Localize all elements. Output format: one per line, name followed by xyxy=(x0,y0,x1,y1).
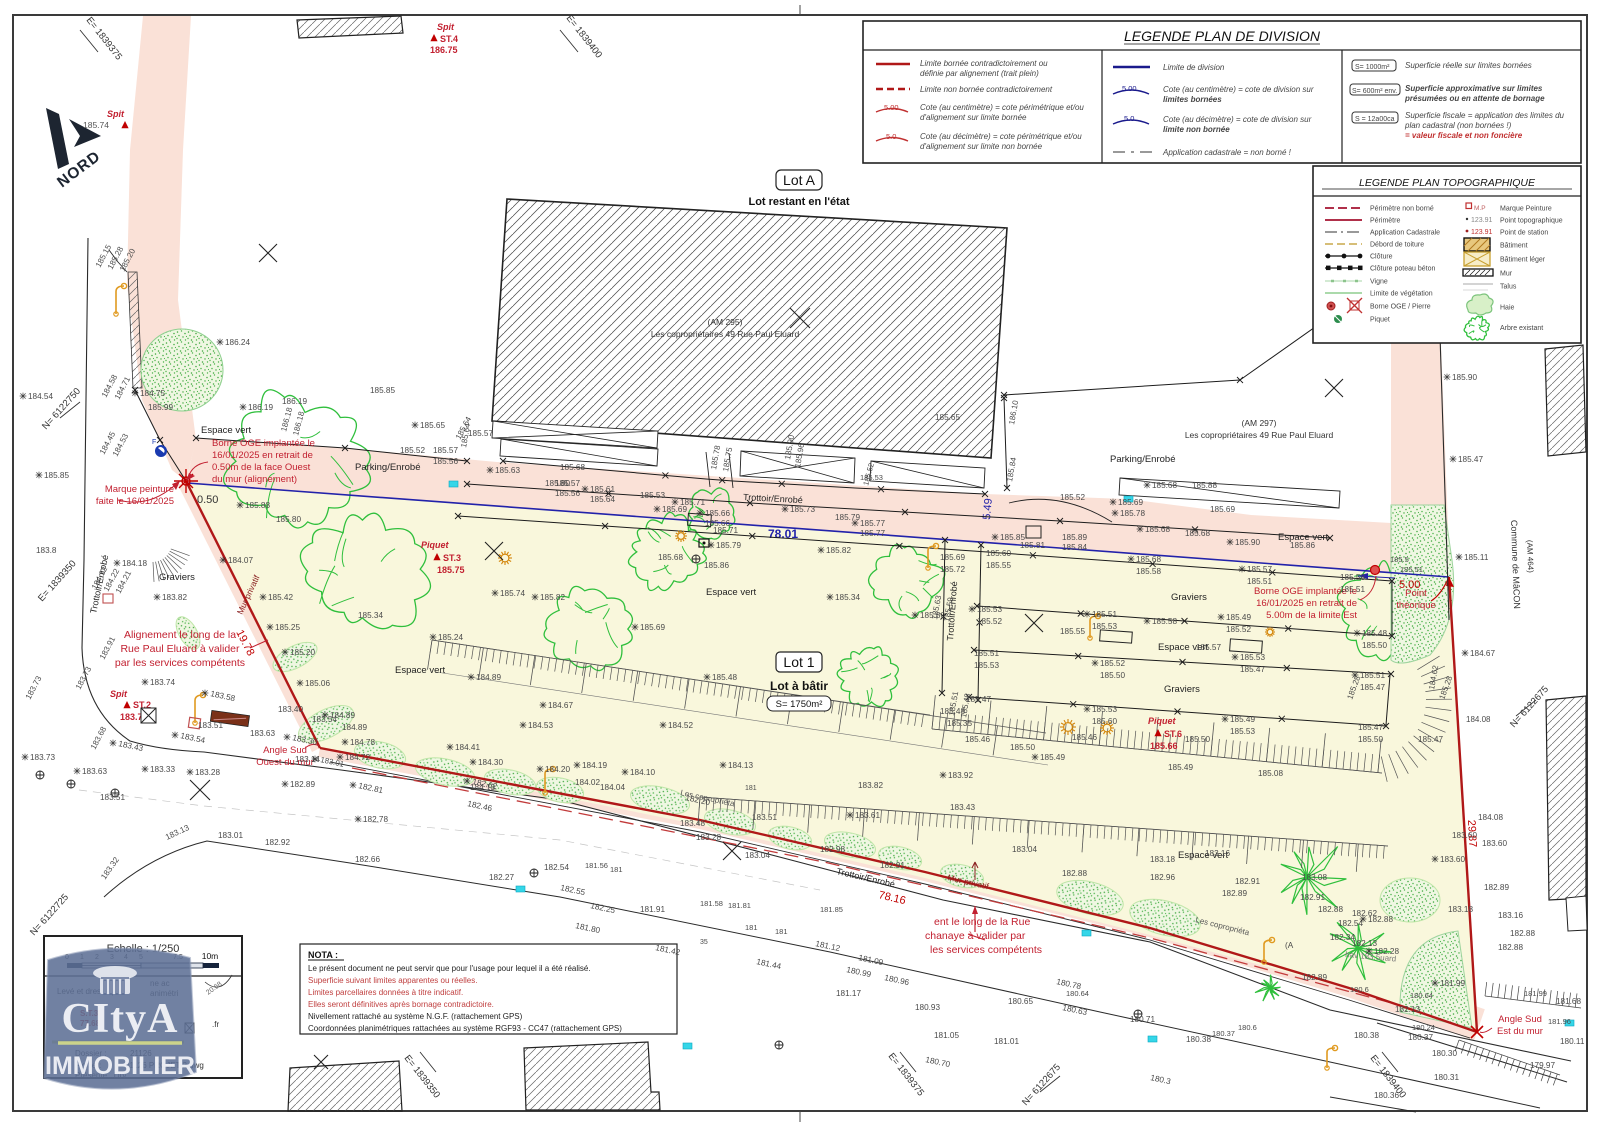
svg-text:185.50: 185.50 xyxy=(1358,735,1383,744)
svg-text:185.11: 185.11 xyxy=(1464,553,1489,562)
svg-text:Rue Paul Eluard à valider: Rue Paul Eluard à valider xyxy=(120,643,240,655)
svg-text:185.46: 185.46 xyxy=(1072,733,1097,742)
svg-text:185.47: 185.47 xyxy=(1360,683,1385,692)
svg-text:185.53: 185.53 xyxy=(977,605,1002,614)
svg-text:5.0: 5.0 xyxy=(886,132,896,141)
svg-text:183.61: 183.61 xyxy=(855,811,880,820)
svg-text:Cote (au centimètre) = cote de: Cote (au centimètre) = cote de division … xyxy=(1163,85,1314,94)
svg-text:184.20: 184.20 xyxy=(545,765,570,774)
svg-text:185.49: 185.49 xyxy=(1040,753,1065,762)
svg-text:185.56: 185.56 xyxy=(433,457,458,466)
svg-text:LEGENDE PLAN TOPOGRAPHIQUE: LEGENDE PLAN TOPOGRAPHIQUE xyxy=(1359,177,1536,189)
svg-text:183.28: 183.28 xyxy=(696,833,721,842)
svg-text:181.96: 181.96 xyxy=(1548,1017,1571,1026)
svg-text:CItyA: CItyA xyxy=(62,996,179,1042)
svg-text:185.52: 185.52 xyxy=(977,617,1002,626)
svg-text:180.6: 180.6 xyxy=(1238,1023,1257,1032)
svg-text:16/01/2025 en retrait de: 16/01/2025 en retrait de xyxy=(212,450,313,461)
svg-text:123.91: 123.91 xyxy=(1471,229,1493,236)
svg-text:185.69: 185.69 xyxy=(1118,498,1143,507)
svg-text:185.90: 185.90 xyxy=(1235,538,1260,547)
svg-text:Haie: Haie xyxy=(1500,305,1515,312)
svg-text:ST.3: ST.3 xyxy=(443,553,461,563)
svg-text:185.73: 185.73 xyxy=(790,505,815,514)
svg-text:ST.6: ST.6 xyxy=(1164,729,1182,739)
svg-text:182.13: 182.13 xyxy=(1395,1005,1420,1014)
svg-text:185.47: 185.47 xyxy=(1418,735,1443,744)
svg-text:183.63: 183.63 xyxy=(250,729,275,738)
svg-text:181.99: 181.99 xyxy=(1440,979,1465,988)
svg-text:185.61: 185.61 xyxy=(590,485,615,494)
svg-text:182.78: 182.78 xyxy=(363,815,388,824)
svg-text:Mur: Mur xyxy=(1500,271,1513,278)
svg-text:16/01/2025 en retrait de: 16/01/2025 en retrait de xyxy=(1256,598,1357,609)
svg-text:(A: (A xyxy=(1285,941,1294,950)
svg-text:185.51: 185.51 xyxy=(1247,577,1272,586)
svg-text:185.50: 185.50 xyxy=(1010,743,1035,752)
svg-text:Cote (au décimètre) = cote de: Cote (au décimètre) = cote de division s… xyxy=(1163,115,1312,124)
svg-text:Espace vert: Espace vert xyxy=(395,665,446,676)
svg-text:185.58: 185.58 xyxy=(1152,617,1177,626)
svg-text:182.88: 182.88 xyxy=(1318,905,1343,914)
svg-text:185.49: 185.49 xyxy=(1230,715,1255,724)
svg-text:185.46: 185.46 xyxy=(965,735,990,744)
svg-text:185.72: 185.72 xyxy=(940,565,965,574)
svg-text:182.91: 182.91 xyxy=(880,861,905,870)
svg-text:184.02: 184.02 xyxy=(575,778,600,787)
svg-text:Limite bornée contradictoireme: Limite bornée contradictoirement ou xyxy=(920,59,1048,68)
svg-text:185.85: 185.85 xyxy=(370,386,395,395)
svg-text:180.65: 180.65 xyxy=(1008,997,1033,1006)
svg-text:183.73: 183.73 xyxy=(30,753,55,762)
svg-text:185.90: 185.90 xyxy=(1452,373,1477,382)
svg-text:185.52: 185.52 xyxy=(400,446,425,455)
svg-text:185.47: 185.47 xyxy=(1358,723,1383,732)
svg-text:183.14: 183.14 xyxy=(295,755,320,764)
svg-text:Périmètre: Périmètre xyxy=(1370,218,1400,225)
svg-text:185.74: 185.74 xyxy=(500,589,525,598)
svg-text:Spit: Spit xyxy=(107,109,125,119)
svg-text:= valeur fiscale et non fonciè: = valeur fiscale et non foncière xyxy=(1405,131,1523,140)
svg-text:(AM 295): (AM 295) xyxy=(708,317,743,327)
svg-text:184.13: 184.13 xyxy=(470,783,495,792)
svg-text:185.68: 185.68 xyxy=(1152,481,1177,490)
svg-text:M.P: M.P xyxy=(1474,205,1486,212)
svg-text:Graviers: Graviers xyxy=(1171,592,1207,603)
svg-text:Limite de végétation: Limite de végétation xyxy=(1370,291,1433,298)
svg-text:183.40: 183.40 xyxy=(278,705,303,714)
svg-text:185.81: 185.81 xyxy=(1020,541,1045,550)
svg-text:185.49: 185.49 xyxy=(1226,613,1251,622)
svg-text:181.58: 181.58 xyxy=(700,899,723,908)
svg-text:Alignement le long de la: Alignement le long de la xyxy=(124,629,236,641)
svg-text:185.63: 185.63 xyxy=(495,466,520,475)
svg-text:185.88: 185.88 xyxy=(245,501,270,510)
svg-text:F: F xyxy=(152,439,156,446)
svg-text:185.58: 185.58 xyxy=(1340,573,1365,582)
svg-text:185.80: 185.80 xyxy=(545,479,570,488)
svg-text:185.69: 185.69 xyxy=(640,623,665,632)
svg-text:Lot 1: Lot 1 xyxy=(783,654,814,670)
svg-text:180.30: 180.30 xyxy=(1432,1049,1457,1058)
svg-text:185.74: 185.74 xyxy=(83,120,109,130)
svg-text:limites bornées: limites bornées xyxy=(1163,95,1222,104)
svg-text:185.80: 185.80 xyxy=(276,515,301,524)
svg-text:182.96: 182.96 xyxy=(1150,873,1175,882)
svg-text:184.10: 184.10 xyxy=(630,768,655,777)
svg-text:Est du mur: Est du mur xyxy=(1497,1026,1543,1037)
svg-text:182.54: 182.54 xyxy=(1338,919,1363,928)
svg-text:183.18: 183.18 xyxy=(1448,905,1473,914)
svg-text:Limite non bornée contradictoi: Limite non bornée contradictoirement xyxy=(920,85,1053,94)
svg-text:plan cadastral (non bornées !): plan cadastral (non bornées !) xyxy=(1404,121,1512,130)
svg-text:Cote (au décimètre) = cote pér: Cote (au décimètre) = cote périmétrique … xyxy=(920,132,1082,141)
svg-text:182.88: 182.88 xyxy=(1510,929,1535,938)
svg-text:185.51: 185.51 xyxy=(1400,565,1423,574)
svg-text:185.60: 185.60 xyxy=(986,549,1011,558)
svg-text:Borne OGE implantée le: Borne OGE implantée le xyxy=(212,438,315,449)
svg-text:185.82: 185.82 xyxy=(826,546,851,555)
svg-text:184.04: 184.04 xyxy=(600,783,625,792)
svg-text:183.04: 183.04 xyxy=(1012,845,1037,854)
svg-text:182.91: 182.91 xyxy=(1300,893,1325,902)
svg-text:présumées ou en attente de bor: présumées ou en attente de bornage xyxy=(1404,94,1545,103)
svg-text:Espace vert: Espace vert xyxy=(201,425,252,436)
svg-text:185.65: 185.65 xyxy=(935,413,960,422)
svg-text:Clôture: Clôture xyxy=(1370,254,1393,261)
svg-text:183.08: 183.08 xyxy=(1302,873,1327,882)
svg-text:183.60: 183.60 xyxy=(1452,831,1477,840)
svg-text:ST.4: ST.4 xyxy=(440,34,458,44)
svg-text:(AM 464): (AM 464) xyxy=(1525,540,1535,574)
svg-text:limite non bornée: limite non bornée xyxy=(1163,125,1230,134)
svg-text:182.54: 182.54 xyxy=(544,863,569,872)
svg-text:184.75: 184.75 xyxy=(140,389,165,398)
svg-text:Talus: Talus xyxy=(1500,284,1517,291)
svg-text:S= 1750m²: S= 1750m² xyxy=(776,699,823,710)
svg-text:185.68: 185.68 xyxy=(560,463,585,472)
svg-text:185.57: 185.57 xyxy=(1196,643,1221,652)
svg-text:185.51: 185.51 xyxy=(974,649,999,658)
svg-text:182.66: 182.66 xyxy=(355,855,380,864)
svg-text:Elles seront définitives après: Elles seront définitives après bornage c… xyxy=(308,1000,494,1009)
svg-text:184.67: 184.67 xyxy=(548,701,573,710)
svg-text:180.11: 180.11 xyxy=(1560,1037,1585,1046)
svg-text:185.60: 185.60 xyxy=(1092,717,1117,726)
svg-text:185.48: 185.48 xyxy=(1362,629,1387,638)
svg-text:185.86: 185.86 xyxy=(1290,541,1315,550)
svg-text:184.89: 184.89 xyxy=(476,673,501,682)
svg-text:185.52: 185.52 xyxy=(1226,625,1251,634)
svg-text:Les copropriétaires 49 Rue Pau: Les copropriétaires 49 Rue Paul Eluard xyxy=(651,329,800,339)
svg-text:183.33: 183.33 xyxy=(150,765,175,774)
svg-text:10m: 10m xyxy=(202,951,219,961)
svg-text:ent le long de la Rue: ent le long de la Rue xyxy=(934,916,1030,928)
svg-text:180.37: 180.37 xyxy=(1212,1029,1235,1038)
svg-text:185.69: 185.69 xyxy=(940,553,965,562)
svg-text:184.08: 184.08 xyxy=(1478,813,1503,822)
svg-text:faite le 16/01/2025: faite le 16/01/2025 xyxy=(96,496,174,507)
svg-text:Point: Point xyxy=(1405,588,1427,599)
svg-text:Marque Peinture: Marque Peinture xyxy=(1500,206,1552,213)
svg-text:183.74: 183.74 xyxy=(150,678,175,687)
svg-text:Parking/Enrobé: Parking/Enrobé xyxy=(355,462,420,473)
svg-text:184.08: 184.08 xyxy=(1466,715,1491,724)
svg-text:183.28: 183.28 xyxy=(195,768,220,777)
svg-text:Application cadastrale = non b: Application cadastrale = non borné ! xyxy=(1162,148,1292,157)
svg-text:183.01: 183.01 xyxy=(218,831,243,840)
svg-text:185.55: 185.55 xyxy=(986,561,1011,570)
svg-text:(AM 297): (AM 297) xyxy=(1242,418,1277,428)
svg-text:185.56: 185.56 xyxy=(555,489,580,498)
svg-text:185.48: 185.48 xyxy=(712,673,737,682)
svg-text:185.50: 185.50 xyxy=(1185,735,1210,744)
svg-text:183.63: 183.63 xyxy=(82,767,107,776)
svg-text:définie par alignement (trait: définie par alignement (trait plein) xyxy=(920,69,1039,78)
svg-text:182.91: 182.91 xyxy=(1235,877,1260,886)
svg-text:les services compétents: les services compétents xyxy=(930,944,1042,956)
svg-text:185.77: 185.77 xyxy=(860,529,885,538)
svg-text:185.68: 185.68 xyxy=(1145,525,1170,534)
svg-text:Graviers: Graviers xyxy=(159,572,195,583)
svg-text:182.98: 182.98 xyxy=(820,845,845,854)
svg-text:185.53: 185.53 xyxy=(1240,653,1265,662)
svg-text:183.60: 183.60 xyxy=(1440,855,1465,864)
svg-text:LEGENDE PLAN DE DIVISION: LEGENDE PLAN DE DIVISION xyxy=(1124,28,1321,44)
svg-text:185.58: 185.58 xyxy=(1136,567,1161,576)
svg-text:185.52: 185.52 xyxy=(1100,659,1125,668)
svg-text:185.49: 185.49 xyxy=(1168,763,1193,772)
svg-text:185.57: 185.57 xyxy=(468,429,493,438)
svg-text:183.8: 183.8 xyxy=(36,546,57,555)
svg-text:183.16: 183.16 xyxy=(1498,911,1523,920)
svg-text:5.00: 5.00 xyxy=(884,103,899,112)
svg-text:.fr: .fr xyxy=(212,1020,219,1029)
svg-text:185.53: 185.53 xyxy=(974,661,999,670)
svg-text:Espace vert: Espace vert xyxy=(706,587,757,598)
svg-text:181.68: 181.68 xyxy=(1556,997,1581,1006)
svg-text:185.5: 185.5 xyxy=(1390,555,1409,564)
svg-text:Superficie fiscale = applicati: Superficie fiscale = application des lim… xyxy=(1405,111,1565,120)
svg-text:186.19: 186.19 xyxy=(248,403,273,412)
svg-text:Clôture poteau béton: Clôture poteau béton xyxy=(1370,266,1435,273)
svg-text:185.51: 185.51 xyxy=(1340,585,1365,594)
svg-text:184.30: 184.30 xyxy=(478,758,503,767)
svg-text:185.06: 185.06 xyxy=(305,679,330,688)
svg-text:182.89: 182.89 xyxy=(1484,883,1509,892)
svg-text:Bâtiment: Bâtiment xyxy=(1500,243,1528,250)
svg-text:5.00: 5.00 xyxy=(1122,84,1137,93)
svg-text:185.57: 185.57 xyxy=(433,446,458,455)
svg-text:NOTA :: NOTA : xyxy=(308,950,338,960)
svg-text:184.07: 184.07 xyxy=(228,556,253,565)
svg-text:182.88: 182.88 xyxy=(1498,943,1523,952)
svg-text:185.53: 185.53 xyxy=(640,491,665,500)
svg-text:Application Cadastrale: Application Cadastrale xyxy=(1370,230,1440,237)
svg-text:IMMOBILIER: IMMOBILIER xyxy=(45,1052,195,1080)
svg-text:181: 181 xyxy=(610,865,623,874)
svg-text:Périmètre non borné: Périmètre non borné xyxy=(1370,206,1434,213)
svg-text:d'alignement sur limite bornée: d'alignement sur limite bornée xyxy=(920,113,1027,122)
svg-text:181: 181 xyxy=(745,923,758,932)
svg-text:Spit: Spit xyxy=(437,22,455,32)
svg-text:185.57: 185.57 xyxy=(1247,565,1272,574)
svg-text:Limites parcellaires données à: Limites parcellaires données à titre ind… xyxy=(308,988,463,997)
svg-text:184.18: 184.18 xyxy=(122,559,147,568)
svg-text:185.89: 185.89 xyxy=(1062,533,1087,542)
svg-text:185.55: 185.55 xyxy=(1060,627,1085,636)
svg-text:Les copropriétaires 49 Rue Pau: Les copropriétaires 49 Rue Paul Eluard xyxy=(1185,430,1334,440)
svg-text:185.24: 185.24 xyxy=(438,633,463,642)
svg-text:180.71: 180.71 xyxy=(1130,1015,1155,1024)
svg-text:Angle Sud: Angle Sud xyxy=(1498,1014,1542,1025)
svg-text:181: 181 xyxy=(745,785,757,792)
svg-text:181.81: 181.81 xyxy=(728,901,751,910)
svg-text:d'alignement sur limite non bo: d'alignement sur limite non bornée xyxy=(920,142,1043,151)
svg-text:185.47: 185.47 xyxy=(1458,455,1483,464)
svg-text:185.50: 185.50 xyxy=(1362,641,1387,650)
svg-text:183.43: 183.43 xyxy=(950,803,975,812)
svg-text:180.38: 180.38 xyxy=(1186,1035,1211,1044)
svg-text:Lot A: Lot A xyxy=(783,172,816,188)
svg-text:185.51: 185.51 xyxy=(1092,610,1117,619)
svg-text:184.41: 184.41 xyxy=(455,743,480,752)
svg-text:185.66: 185.66 xyxy=(1150,741,1178,751)
svg-text:Superficie suivant limites app: Superficie suivant limites apparentes ou… xyxy=(308,976,477,985)
svg-text:185.68: 185.68 xyxy=(658,553,683,562)
svg-text:Piquet: Piquet xyxy=(1148,716,1177,726)
svg-text:181.17: 181.17 xyxy=(836,989,861,998)
svg-text:180.64: 180.64 xyxy=(1066,989,1089,998)
svg-text:181.99: 181.99 xyxy=(1524,989,1547,998)
svg-text:183.60: 183.60 xyxy=(1482,839,1507,848)
svg-text:180.37: 180.37 xyxy=(1408,1033,1433,1042)
svg-text:185.66: 185.66 xyxy=(705,509,730,518)
svg-text:0.50: 0.50 xyxy=(197,494,218,506)
svg-text:du mur (alignement): du mur (alignement) xyxy=(212,474,297,485)
svg-text:185.79: 185.79 xyxy=(835,513,860,522)
svg-text:185.34: 185.34 xyxy=(835,593,860,602)
svg-text:185.77: 185.77 xyxy=(860,519,885,528)
svg-text:185.86: 185.86 xyxy=(704,561,729,570)
svg-text:185.65: 185.65 xyxy=(420,421,445,430)
svg-text:S= 1000m²: S= 1000m² xyxy=(1355,64,1390,71)
svg-text:181.56: 181.56 xyxy=(585,861,608,870)
svg-text:123.91: 123.91 xyxy=(1471,217,1493,224)
svg-text:180.64: 180.64 xyxy=(1410,991,1433,1000)
svg-text:183.51: 183.51 xyxy=(100,793,125,802)
svg-text:Graviers: Graviers xyxy=(1164,684,1200,695)
svg-text:185.20: 185.20 xyxy=(290,648,315,657)
svg-text:182.92: 182.92 xyxy=(265,838,290,847)
svg-text:186.19: 186.19 xyxy=(282,397,307,406)
svg-text:0.50m de la face Ouest: 0.50m de la face Ouest xyxy=(212,462,311,473)
svg-text:181.01: 181.01 xyxy=(994,1037,1019,1046)
svg-text:par les services compétents: par les services compétents xyxy=(115,657,245,669)
svg-text:181: 181 xyxy=(775,927,788,936)
svg-text:184.19: 184.19 xyxy=(582,761,607,770)
svg-text:Parking/Enrobé: Parking/Enrobé xyxy=(1110,454,1175,465)
svg-text:Nivellement rattaché au systèm: Nivellement rattaché au système N.G.F. (… xyxy=(308,1012,523,1021)
svg-text:185.42: 185.42 xyxy=(268,593,293,602)
svg-text:179.97: 179.97 xyxy=(1530,1061,1555,1070)
svg-text:Point de station: Point de station xyxy=(1500,230,1548,237)
svg-text:185.47: 185.47 xyxy=(1240,665,1265,674)
svg-text:182.27: 182.27 xyxy=(489,873,514,882)
svg-text:Point topographique: Point topographique xyxy=(1500,218,1563,225)
svg-text:Lot restant en l'état: Lot restant en l'état xyxy=(748,196,849,208)
svg-text:S = 12a00ca: S = 12a00ca xyxy=(1355,116,1395,123)
svg-text:182.88: 182.88 xyxy=(1062,869,1087,878)
svg-text:Superficie approximative sur l: Superficie approximative sur limites xyxy=(1405,84,1543,93)
svg-text:183.51: 183.51 xyxy=(198,721,223,730)
svg-text:181.91: 181.91 xyxy=(640,905,665,914)
svg-text:Cote (au centimètre) = cote pé: Cote (au centimètre) = cote périmétrique… xyxy=(920,103,1084,112)
svg-text:185.53: 185.53 xyxy=(1092,622,1117,631)
svg-text:182.28: 182.28 xyxy=(1374,947,1399,956)
svg-text:184.53: 184.53 xyxy=(528,721,553,730)
svg-text:182.89: 182.89 xyxy=(1222,889,1247,898)
svg-text:185.53: 185.53 xyxy=(1092,705,1117,714)
svg-text:185.51: 185.51 xyxy=(1360,671,1385,680)
svg-text:5.0: 5.0 xyxy=(1124,114,1134,123)
svg-text:185.75: 185.75 xyxy=(437,565,465,575)
svg-text:185.52: 185.52 xyxy=(1060,493,1085,502)
svg-text:186.24: 186.24 xyxy=(225,338,250,347)
svg-text:S= 600m² env.: S= 600m² env. xyxy=(1352,88,1397,95)
svg-text:183.92: 183.92 xyxy=(948,771,973,780)
svg-text:182.89: 182.89 xyxy=(290,780,315,789)
svg-text:183.16: 183.16 xyxy=(1205,849,1230,858)
svg-text:181.85: 181.85 xyxy=(820,905,843,914)
svg-text:Borne OGE / Pierre: Borne OGE / Pierre xyxy=(1370,304,1431,311)
svg-text:180.31: 180.31 xyxy=(1434,1073,1459,1082)
svg-text:183.82: 183.82 xyxy=(162,593,187,602)
svg-text:182.88: 182.88 xyxy=(1368,915,1393,924)
svg-text:185.69: 185.69 xyxy=(1210,505,1235,514)
svg-text:185.68: 185.68 xyxy=(1185,529,1210,538)
svg-text:185.68: 185.68 xyxy=(1136,555,1161,564)
svg-text:Débord de toiture: Débord de toiture xyxy=(1370,242,1424,249)
svg-text:184.52: 184.52 xyxy=(668,721,693,730)
svg-text:186.75: 186.75 xyxy=(430,45,458,55)
svg-text:180.38: 180.38 xyxy=(1354,1031,1379,1040)
svg-text:183.48: 183.48 xyxy=(680,819,705,828)
svg-text:183.51: 183.51 xyxy=(752,813,777,822)
svg-text:184.78: 184.78 xyxy=(350,738,375,747)
svg-text:Vigne: Vigne xyxy=(1370,279,1388,286)
svg-text:185.84: 185.84 xyxy=(1062,543,1087,552)
svg-text:183.18: 183.18 xyxy=(1150,855,1175,864)
svg-text:180.6: 180.6 xyxy=(1350,985,1369,994)
svg-text:184.89: 184.89 xyxy=(342,723,367,732)
svg-text:Spit: Spit xyxy=(110,689,128,699)
svg-text:180.93: 180.93 xyxy=(915,1003,940,1012)
svg-text:185.71: 185.71 xyxy=(713,526,738,535)
svg-text:Piquet: Piquet xyxy=(1370,317,1390,324)
svg-text:184.67: 184.67 xyxy=(1470,649,1495,658)
svg-text:182.89: 182.89 xyxy=(1302,973,1327,982)
svg-text:35: 35 xyxy=(700,939,708,946)
svg-text:184.72: 184.72 xyxy=(345,753,370,762)
svg-text:Arbre existant: Arbre existant xyxy=(1500,325,1543,332)
svg-text:183.04: 183.04 xyxy=(745,851,770,860)
svg-text:185.85: 185.85 xyxy=(44,471,69,480)
svg-text:185.69: 185.69 xyxy=(662,505,687,514)
svg-text:180.24: 180.24 xyxy=(1412,1023,1435,1032)
svg-text:Superficie réelle sur limites: Superficie réelle sur limites bornées xyxy=(1405,61,1532,70)
svg-text:Piquet: Piquet xyxy=(421,540,450,550)
